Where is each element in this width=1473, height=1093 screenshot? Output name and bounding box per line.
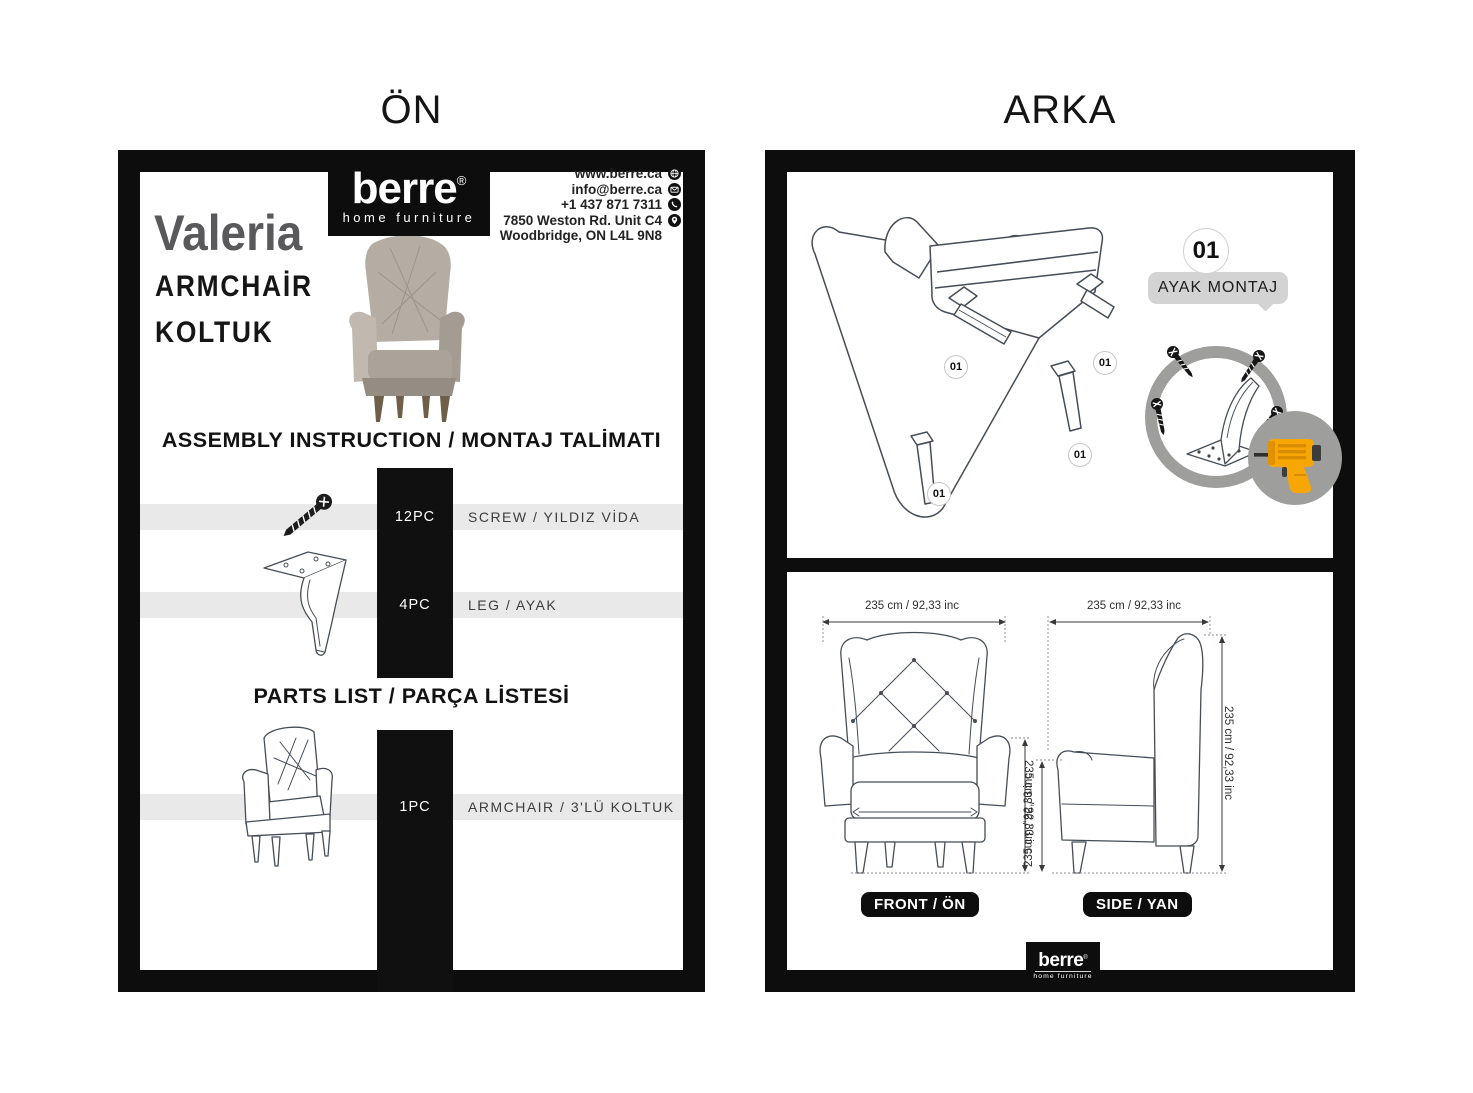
- brand-logo: berre® home furniture: [328, 150, 490, 236]
- product-category-tr: KOLTUK: [155, 316, 274, 350]
- leg-step-marker: 01: [1093, 351, 1117, 375]
- contact-address1-text: 7850 Weston Rd. Unit C4: [503, 213, 662, 228]
- part-name: ARMCHAIR / 3'LÜ KOLTUK: [468, 794, 675, 820]
- brand-name-text: berre: [1038, 950, 1083, 971]
- part-name: LEG / AYAK: [468, 592, 557, 618]
- quantity-column: [377, 468, 453, 678]
- email-icon: [668, 183, 681, 196]
- brand-name: berre®: [1038, 950, 1087, 969]
- product-category-en: ARMCHAİR: [155, 270, 313, 304]
- front-view-diagram: [807, 590, 1037, 890]
- product-name: Valeria: [154, 204, 302, 262]
- contact-address2-text: Woodbridge, ON L4L 9N8: [500, 228, 662, 243]
- registered-mark: ®: [457, 173, 467, 188]
- quantity-value: 4PC: [377, 592, 453, 618]
- assembly-heading: ASSEMBLY INSTRUCTION / MONTAJ TALİMATI: [140, 428, 683, 453]
- icon-spacer: [668, 229, 681, 242]
- side-view-depth-dimension: 235 cm / 92,33 inc: [1039, 600, 1229, 612]
- location-icon: [668, 214, 681, 227]
- back-page: 01 01 01 01 01 AYAK MONTAJ: [765, 150, 1355, 992]
- step-label-text: AYAK MONTAJ: [1158, 279, 1278, 297]
- contact-phone: +1 437 871 7311: [500, 197, 681, 213]
- brand-tagline: home furniture: [1033, 973, 1092, 980]
- section-divider: [765, 558, 1355, 572]
- leg-step-marker: 01: [927, 482, 951, 506]
- drill-detail-circle: [1248, 411, 1342, 505]
- contact-address1: 7850 Weston Rd. Unit C4: [500, 213, 681, 229]
- front-page: berre® home furniture www.berre.ca info@…: [118, 150, 705, 992]
- registered-mark: ®: [1083, 955, 1087, 961]
- contact-email: info@berre.ca: [500, 182, 681, 198]
- quantity-value: 1PC: [377, 794, 453, 820]
- contact-website-text: www.berre.ca: [575, 166, 662, 181]
- logo-divider-line: [1035, 971, 1091, 972]
- side-view-label: SIDE / YAN: [1083, 892, 1192, 917]
- front-view-label: FRONT / ÖN: [861, 892, 979, 917]
- instruction-sheet: ÖN ARKA berre® home furniture www.berre.…: [0, 0, 1473, 1093]
- phone-icon: [668, 198, 681, 211]
- brand-name-text: berre: [352, 164, 457, 213]
- leg-step-marker: 01: [944, 355, 968, 379]
- leg-icon: [258, 544, 353, 666]
- quantity-column: [377, 730, 453, 992]
- quantity-value: 12PC: [377, 504, 453, 530]
- step-label-badge: AYAK MONTAJ: [1148, 272, 1288, 304]
- leg-step-marker: 01: [1068, 443, 1092, 467]
- contact-phone-text: +1 437 871 7311: [561, 197, 662, 212]
- globe-icon: [668, 167, 681, 180]
- drill-icon: [1254, 423, 1336, 493]
- brand-logo-footer: berre® home furniture: [1026, 942, 1100, 988]
- parts-list-heading: PARTS LIST / PARÇA LİSTESİ: [140, 684, 683, 709]
- screw-icon: [278, 486, 350, 544]
- brand-tagline: home furniture: [343, 210, 476, 225]
- side-view-height-dimension: 235 cm / 92,33 inc: [1222, 698, 1234, 808]
- side-view-diagram: [1032, 590, 1282, 890]
- part-name: SCREW / YILDIZ VİDA: [468, 504, 640, 530]
- contact-website: www.berre.ca: [500, 166, 681, 182]
- contact-block: www.berre.ca info@berre.ca +1 437 871 73…: [500, 166, 681, 244]
- front-page-title: ÖN: [118, 88, 705, 133]
- step-number-badge: 01: [1183, 228, 1229, 274]
- contact-email-text: info@berre.ca: [572, 182, 662, 197]
- side-view-arm-height-dimension: 235 cm / 92,33 inc: [1023, 765, 1035, 875]
- product-photo-armchair: [332, 232, 482, 427]
- front-view-width-dimension: 235 cm / 92,33 inc: [817, 600, 1007, 612]
- brand-name: berre®: [352, 161, 467, 209]
- back-page-title: ARKA: [765, 88, 1355, 133]
- contact-address2: Woodbridge, ON L4L 9N8: [500, 228, 681, 244]
- armchair-outline-icon: [230, 718, 348, 876]
